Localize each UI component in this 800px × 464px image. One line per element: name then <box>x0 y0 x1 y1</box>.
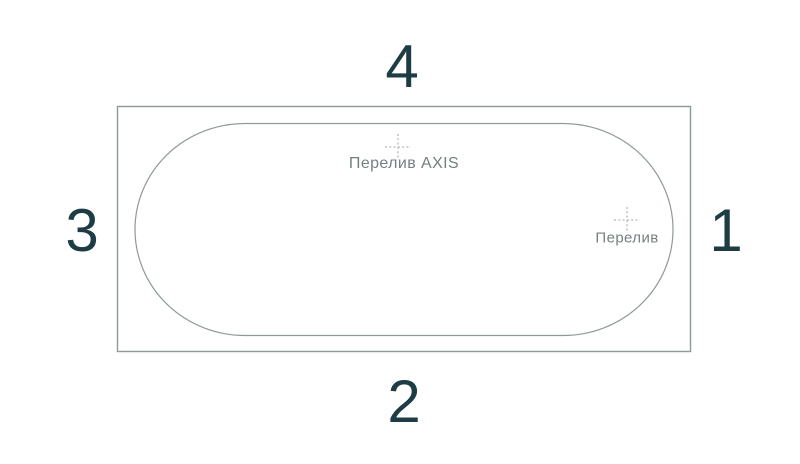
overflow-label: Перелив <box>595 230 658 247</box>
side-label-top: 4 <box>385 37 418 97</box>
side-label-right: 1 <box>709 201 742 261</box>
side-label-left: 3 <box>65 201 98 261</box>
overflow-axis-label: Перелив AXIS <box>349 155 459 173</box>
side-label-bottom: 2 <box>387 372 420 432</box>
bathtub-technical-drawing: 4 2 3 1 Перелив AXIS Перелив <box>0 0 800 464</box>
